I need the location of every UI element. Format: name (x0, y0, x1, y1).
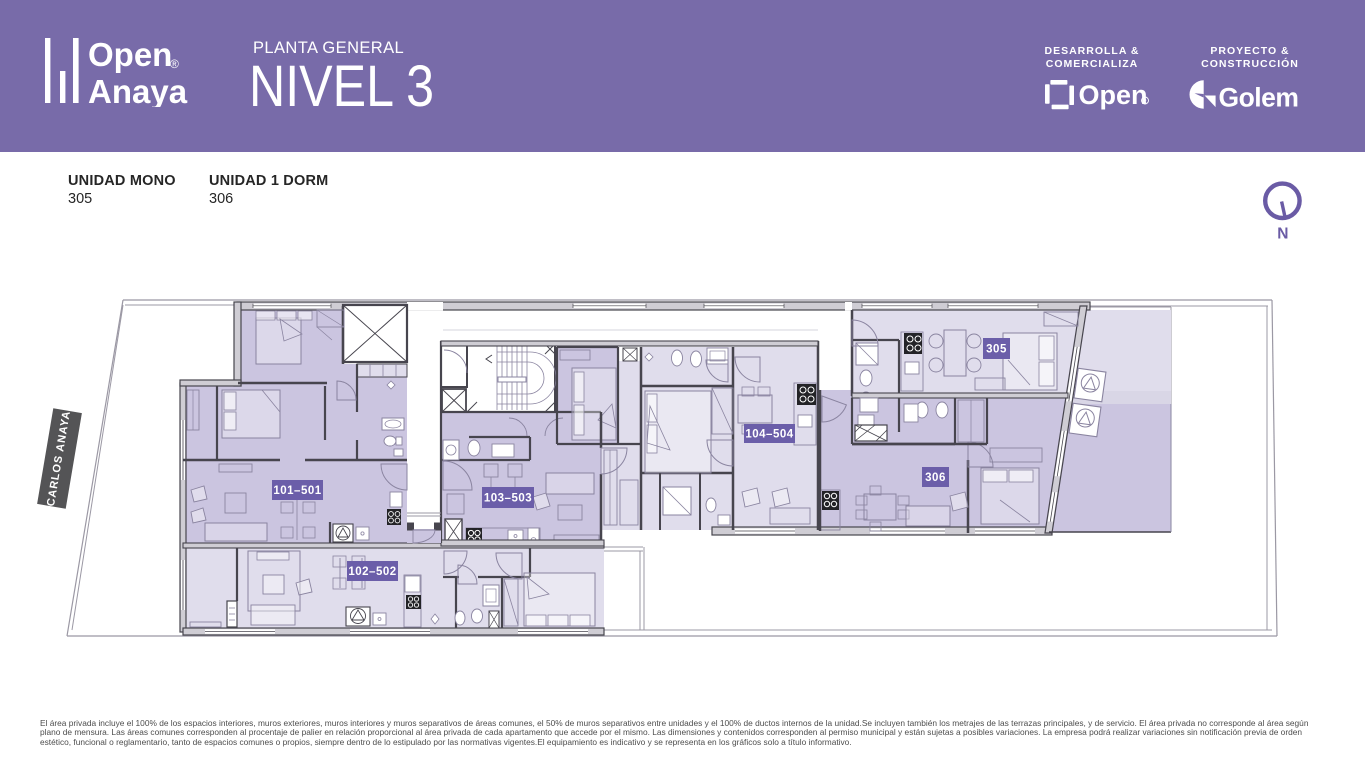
svg-text:102–502: 102–502 (348, 566, 396, 578)
svg-text:103–503: 103–503 (484, 493, 532, 505)
svg-text:305: 305 (986, 344, 1007, 356)
svg-text:306: 306 (925, 472, 946, 484)
svg-text:104–504: 104–504 (745, 429, 793, 441)
svg-text:101–501: 101–501 (273, 485, 321, 497)
